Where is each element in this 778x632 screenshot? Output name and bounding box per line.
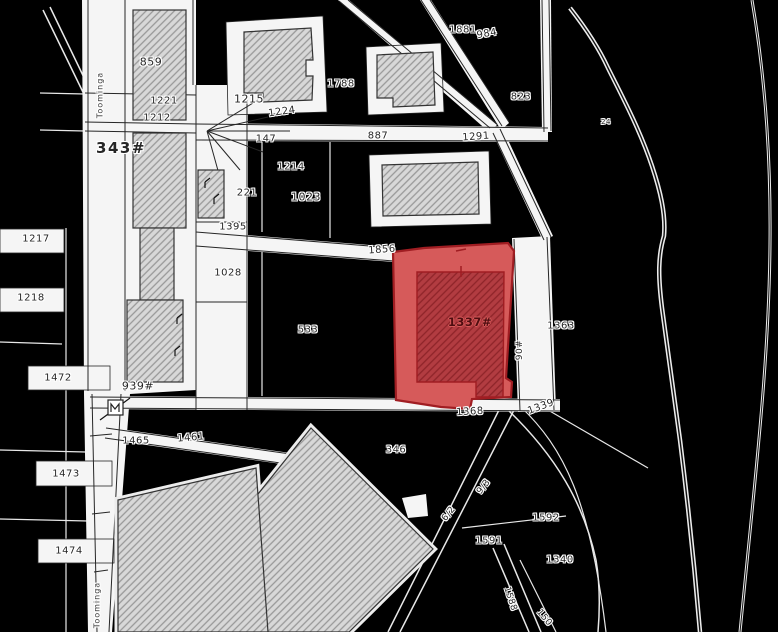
building-1215 [244,28,313,102]
highlighted-parcel-1337[interactable] [393,243,514,409]
building-859 [133,10,186,120]
building-939 [127,300,183,382]
cadastral-map: 85912211212343#1215122414712142211023139… [0,0,778,632]
highlighted-parcel-building [417,272,504,397]
pump-station-symbol [108,400,123,415]
map-graphics [0,0,778,632]
building-small [198,170,224,218]
building-strip-2 [133,133,186,228]
building-strip-3 [140,228,174,300]
building-center [382,162,479,216]
